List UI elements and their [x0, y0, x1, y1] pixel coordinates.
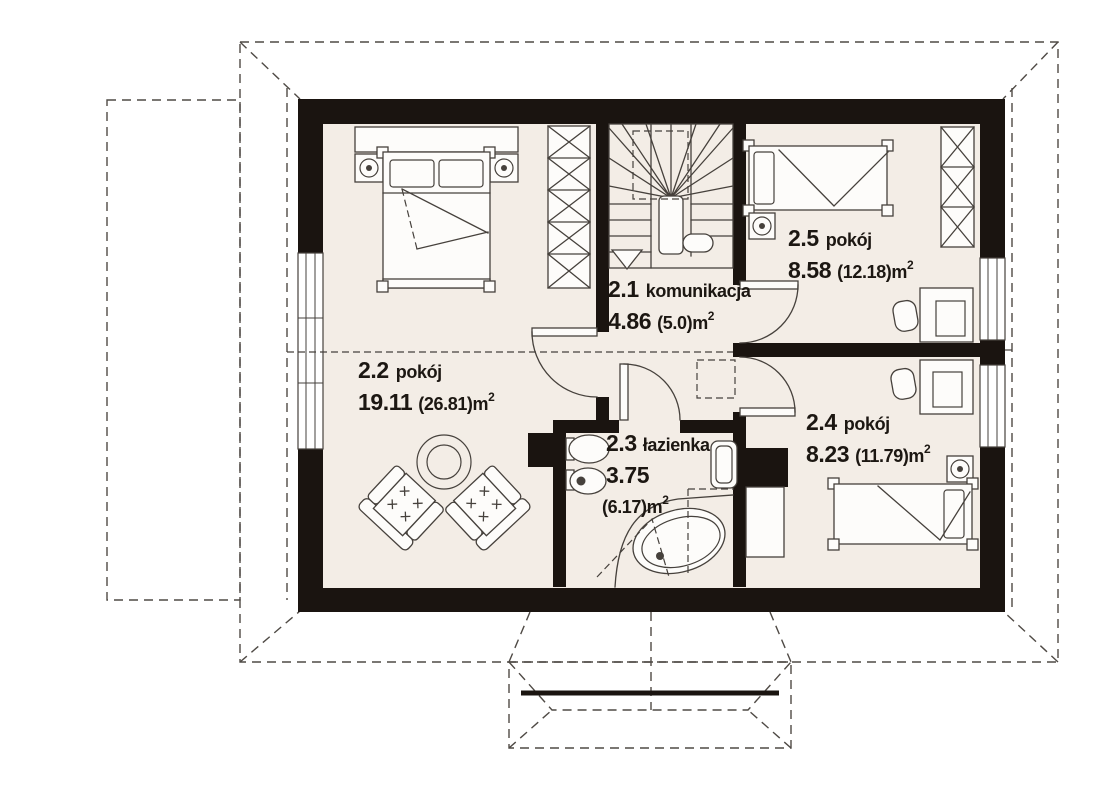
room-area-unit: m [473, 394, 489, 414]
room-area-net: 4.86 [608, 308, 651, 334]
washbasin-icon [569, 435, 609, 463]
lamp-dot-icon [366, 165, 372, 171]
double-bed [383, 152, 490, 288]
lamp-dot-icon [501, 165, 507, 171]
wardrobe-frame [548, 126, 590, 288]
bathtub-drain-icon [656, 552, 664, 560]
room-number: 2.2 [358, 357, 389, 383]
room-number: 2.4 [806, 409, 837, 435]
room-area-unit: m [891, 262, 907, 282]
bed-post [377, 281, 388, 292]
room-area-gross: (11.79) [855, 446, 909, 466]
room-area-unit-sup: 2 [488, 390, 495, 404]
room-area-gross: (6.17) [602, 497, 647, 517]
room-area-unit-sup: 2 [662, 493, 669, 507]
bed-post [967, 539, 978, 550]
bed-foot-bar [383, 279, 490, 288]
chimney-block-right [746, 448, 788, 487]
bed-post [828, 539, 839, 550]
bathroom-wall-right [733, 412, 746, 587]
room-name: łazienka [643, 435, 711, 455]
room-area-gross: (5.0) [657, 313, 692, 333]
room-area-unit: m [908, 446, 924, 466]
wall-between-rooms-24-25 [746, 343, 980, 357]
room-name: pokój [396, 362, 442, 382]
door-leaf [532, 328, 597, 336]
desk-24 [920, 360, 973, 414]
room-area-net: 8.23 [806, 441, 849, 467]
toilet-dot-icon [577, 477, 586, 486]
toilet-icon [570, 468, 606, 494]
room-area-unit-sup: 2 [708, 309, 715, 323]
room-area-gross: (26.81) [418, 394, 473, 414]
room-number: 2.5 [788, 225, 819, 251]
room-name: pokój [826, 230, 872, 250]
bathroom-wall-top-right [680, 420, 733, 433]
room-area-unit: m [692, 313, 708, 333]
right-window-bottom [980, 365, 1005, 447]
room-name: pokój [844, 414, 890, 434]
bed-post [484, 281, 495, 292]
small-basin-icon [711, 441, 737, 488]
room-area-net: 8.58 [788, 257, 832, 283]
room-area-net: 19.11 [358, 389, 413, 415]
room-number: 2.3 [606, 430, 637, 456]
bed-post [882, 205, 893, 216]
room-area-net: 3.75 [606, 462, 650, 488]
duct-shaft-outline [746, 487, 784, 557]
room-area-gross: (12.18) [837, 262, 892, 282]
single-bed-25 [749, 146, 887, 210]
single-bed-24 [834, 484, 972, 544]
door-leaf [620, 364, 628, 420]
wardrobe-25 [941, 127, 974, 247]
left-window [298, 253, 323, 449]
right-window-top-frame [980, 258, 1005, 340]
right-window-bottom-frame [980, 365, 1005, 447]
stair-rail-end [683, 234, 713, 252]
door-leaf [740, 408, 795, 416]
floor-plan-drawing: 2.1komunikacja 4.86(5.0)m2 2.2pokój 19.1… [0, 0, 1118, 800]
floor-plan-page: 2.1komunikacja 4.86(5.0)m2 2.2pokój 19.1… [0, 0, 1118, 800]
left-window-frame [298, 253, 323, 449]
chimney-block-left [528, 433, 556, 467]
wardrobe-22 [548, 126, 590, 288]
wall-junction-right [733, 343, 746, 357]
lamp-dot-icon [957, 466, 963, 472]
room-area-unit: m [647, 497, 663, 517]
room-area-unit-sup: 2 [907, 258, 914, 272]
lamp-dot-icon [759, 223, 765, 229]
room-area-unit-sup: 2 [924, 442, 931, 456]
stair-newel [659, 196, 683, 254]
room-number: 2.1 [608, 276, 639, 302]
room-name: komunikacja [646, 281, 752, 301]
right-window-top [980, 258, 1005, 340]
